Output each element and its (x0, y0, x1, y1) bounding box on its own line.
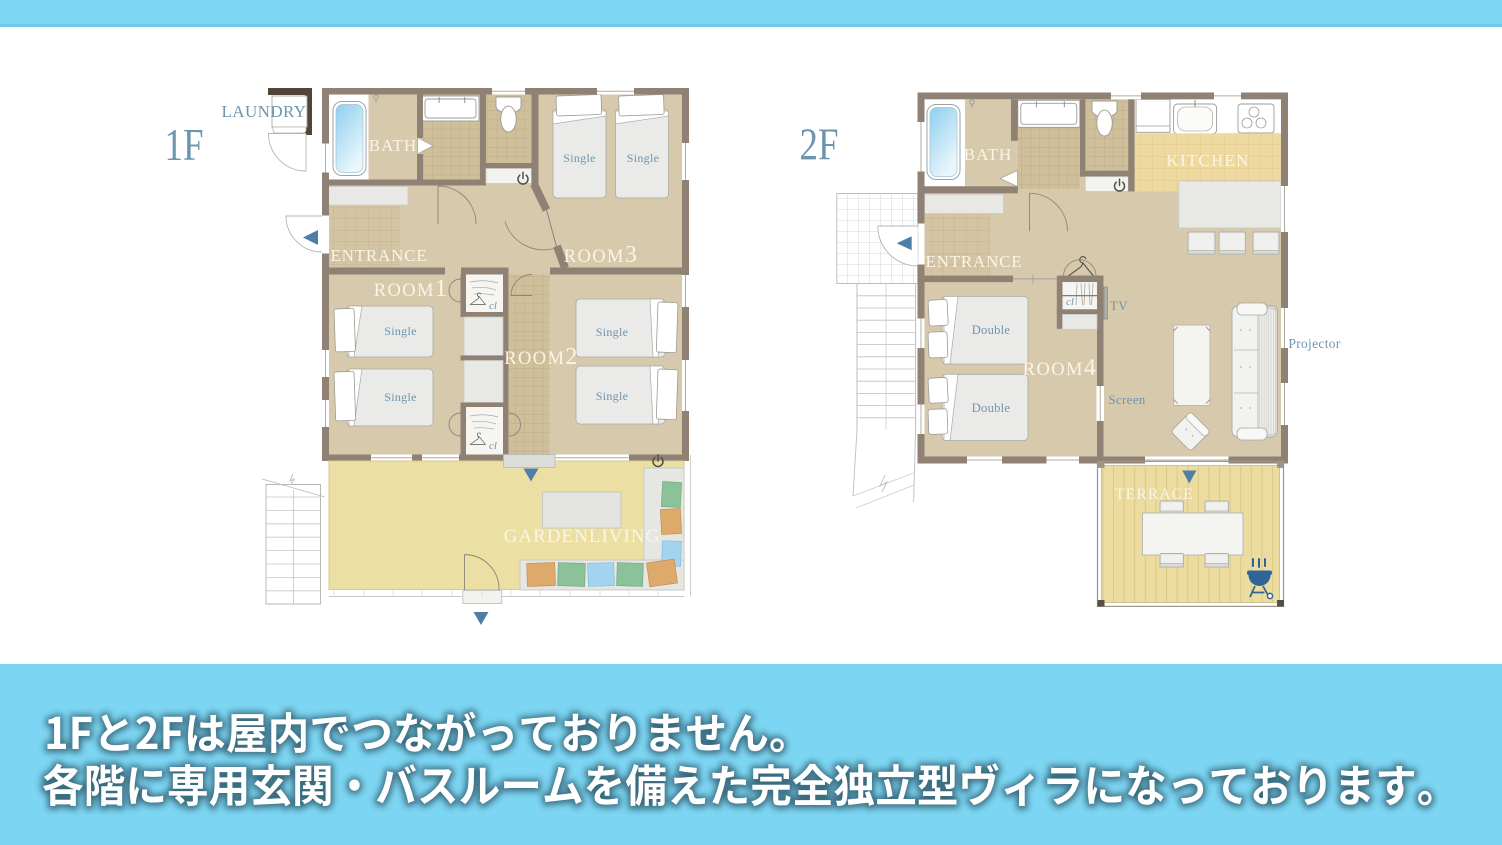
svg-text:Screen: Screen (1108, 392, 1145, 407)
svg-text:KITCHEN: KITCHEN (1167, 151, 1250, 170)
svg-text:1F: 1F (165, 120, 204, 170)
svg-text:Projector: Projector (1288, 336, 1340, 351)
svg-text:Single: Single (627, 151, 659, 165)
svg-text:GARDENLIVING: GARDENLIVING (504, 526, 661, 547)
svg-text:BATH: BATH (964, 145, 1012, 164)
svg-text:TERRACE: TERRACE (1115, 486, 1194, 503)
svg-text:ENTRANCE: ENTRANCE (330, 246, 427, 265)
svg-text:cl: cl (489, 440, 497, 452)
svg-text:Single: Single (596, 325, 628, 339)
svg-text:cl: cl (1066, 296, 1074, 308)
svg-text:cl: cl (489, 300, 497, 312)
svg-text:BATH: BATH (369, 136, 417, 155)
svg-text:Double: Double (972, 323, 1011, 337)
svg-text:TV: TV (1110, 298, 1128, 313)
svg-text:ENTRANCE: ENTRANCE (925, 252, 1022, 271)
svg-text:2F: 2F (800, 119, 839, 169)
svg-text:LAUNDRY: LAUNDRY (222, 102, 307, 121)
svg-text:Single: Single (384, 324, 416, 338)
svg-text:Double: Double (972, 401, 1011, 415)
svg-text:Single: Single (596, 389, 628, 403)
svg-text:Single: Single (563, 151, 595, 165)
svg-text:Single: Single (384, 390, 416, 404)
